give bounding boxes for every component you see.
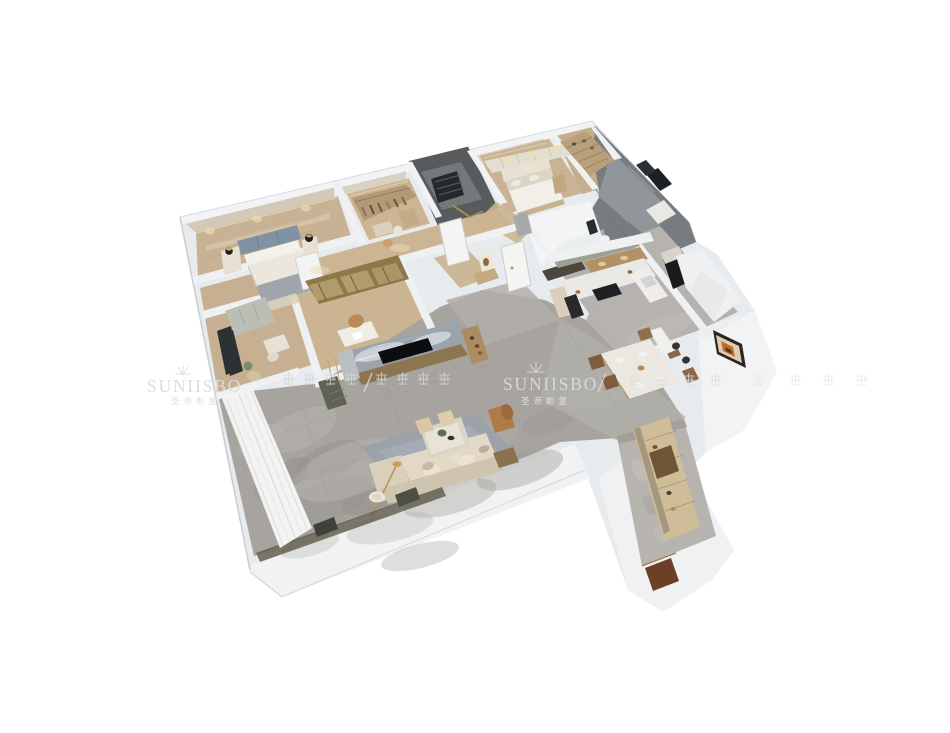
svg-text:圣蒂斯堡: 圣蒂斯堡	[521, 396, 571, 406]
svg-text:SUNIISBO: SUNIISBO	[147, 376, 242, 396]
svg-text:圣蒂斯堡: 圣蒂斯堡	[171, 396, 221, 406]
svg-text:SUNIISBO: SUNIISBO	[503, 374, 598, 394]
